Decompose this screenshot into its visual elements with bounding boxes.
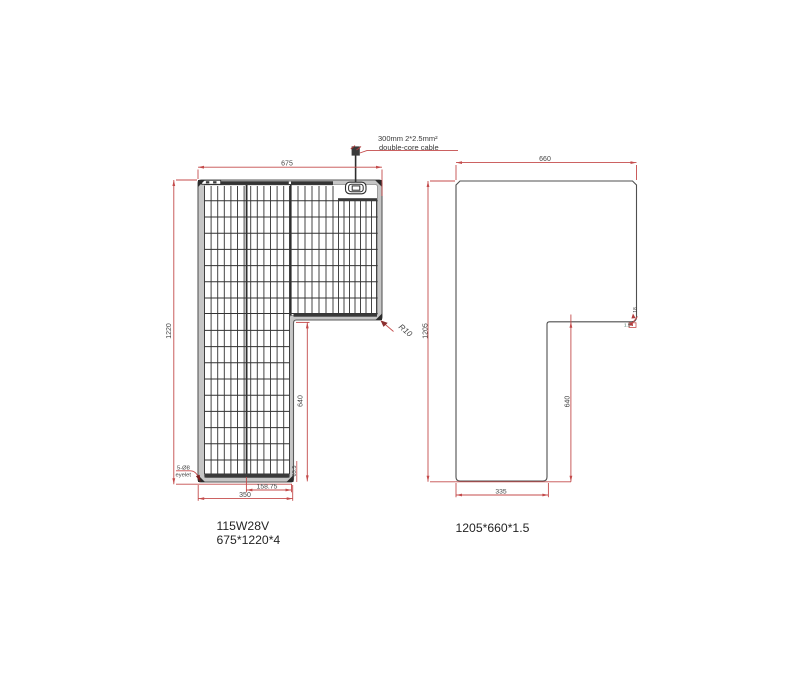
svg-text:640: 640	[565, 396, 572, 408]
svg-text:640: 640	[298, 395, 305, 407]
svg-text:675*1220*4: 675*1220*4	[217, 533, 281, 547]
svg-text:158.75: 158.75	[257, 484, 278, 491]
svg-text:1205: 1205	[423, 323, 430, 339]
svg-text:1220: 1220	[166, 323, 173, 339]
svg-text:18: 18	[633, 307, 639, 313]
svg-text:350: 350	[239, 492, 251, 499]
svg-text:335: 335	[495, 489, 507, 496]
svg-text:63.5: 63.5	[292, 466, 298, 477]
svg-text:eyelet: eyelet	[176, 472, 192, 478]
svg-text:1205*660*1.5: 1205*660*1.5	[456, 521, 530, 535]
svg-text:300mm 2*2.5mm²: 300mm 2*2.5mm²	[378, 134, 438, 143]
svg-text:double-core cable: double-core cable	[379, 143, 439, 152]
svg-text:675: 675	[281, 161, 293, 168]
svg-text:115W28V: 115W28V	[217, 519, 270, 533]
svg-text:1.5: 1.5	[624, 323, 631, 328]
svg-text:660: 660	[539, 156, 551, 163]
